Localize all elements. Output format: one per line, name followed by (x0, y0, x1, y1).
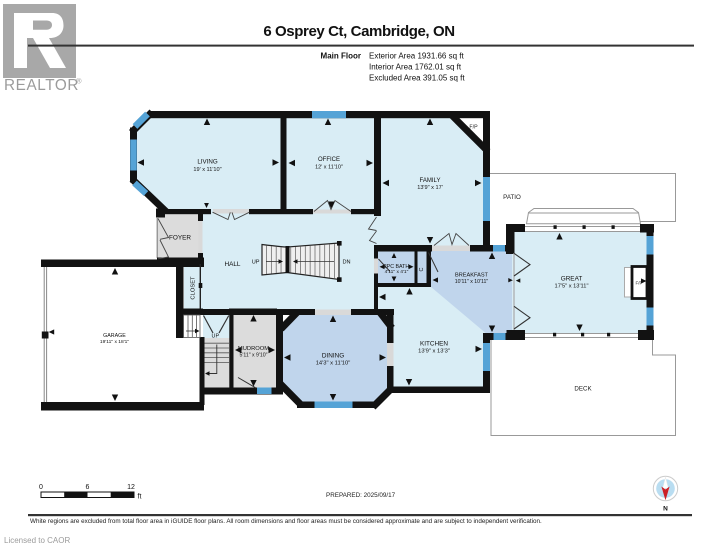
svg-text:REALTOR: REALTOR (4, 77, 79, 94)
svg-text:13'9" x 17': 13'9" x 17' (417, 185, 443, 191)
svg-text:White regions are excluded fro: White regions are excluded from total fl… (30, 518, 542, 525)
svg-text:GREAT: GREAT (561, 276, 583, 283)
svg-text:GARAGE: GARAGE (103, 333, 126, 339)
svg-text:6: 6 (86, 484, 90, 491)
svg-text:F/P: F/P (469, 125, 478, 131)
svg-text:DN: DN (343, 259, 351, 265)
svg-text:17'5" x 13'11": 17'5" x 13'11" (555, 284, 589, 290)
svg-text:Licensed to CAOR: Licensed to CAOR (4, 536, 70, 545)
svg-text:12' x 11'10": 12' x 11'10" (315, 164, 343, 170)
svg-text:BREAKFAST: BREAKFAST (455, 272, 489, 278)
svg-text:KITCHEN: KITCHEN (420, 341, 448, 348)
svg-text:DINING: DINING (322, 353, 344, 360)
svg-text:LIVING: LIVING (197, 158, 217, 165)
svg-text:6 Osprey Ct, Cambridge, ON: 6 Osprey Ct, Cambridge, ON (263, 23, 454, 40)
svg-text:ft: ft (138, 494, 142, 501)
svg-text:14'3" x 11'10": 14'3" x 11'10" (316, 361, 351, 367)
svg-text:Interior Area 1762.01 sq ft: Interior Area 1762.01 sq ft (369, 63, 462, 72)
svg-text:Excluded Area 391.05 sq ft: Excluded Area 391.05 sq ft (369, 74, 465, 83)
svg-text:FOYER: FOYER (169, 235, 191, 242)
svg-text:HALL: HALL (225, 261, 241, 268)
svg-text:4'11" x 4'1": 4'11" x 4'1" (385, 269, 409, 275)
svg-text:UP: UP (212, 334, 220, 340)
svg-text:Exterior Area 1931.66 sq ft: Exterior Area 1931.66 sq ft (369, 52, 465, 61)
svg-text:N: N (663, 506, 668, 513)
svg-text:PATIO: PATIO (503, 194, 521, 201)
svg-text:FAMILY: FAMILY (420, 178, 441, 184)
svg-text:5'11" x 9'10": 5'11" x 9'10" (239, 352, 267, 358)
svg-text:10'11" x 10'11": 10'11" x 10'11" (455, 279, 489, 285)
svg-text:12: 12 (127, 484, 135, 491)
svg-text:PREPARED: 2025/09/17: PREPARED: 2025/09/17 (326, 492, 396, 499)
svg-text:CLOSET: CLOSET (190, 276, 196, 300)
svg-text:MUDROOM: MUDROOM (238, 346, 269, 352)
svg-text:OFFICE: OFFICE (318, 157, 340, 163)
svg-text:13'9" x 13'3": 13'9" x 13'3" (418, 349, 450, 355)
svg-text:®: ® (76, 77, 82, 86)
svg-text:0: 0 (39, 484, 43, 491)
svg-text:19'11" x 18'1": 19'11" x 18'1" (100, 339, 129, 345)
svg-text:19' x 11'10": 19' x 11'10" (193, 167, 221, 173)
svg-text:Main Floor: Main Floor (321, 52, 361, 61)
svg-text:UP: UP (252, 259, 260, 265)
svg-text:C: C (419, 267, 425, 271)
svg-text:DECK: DECK (574, 386, 592, 393)
